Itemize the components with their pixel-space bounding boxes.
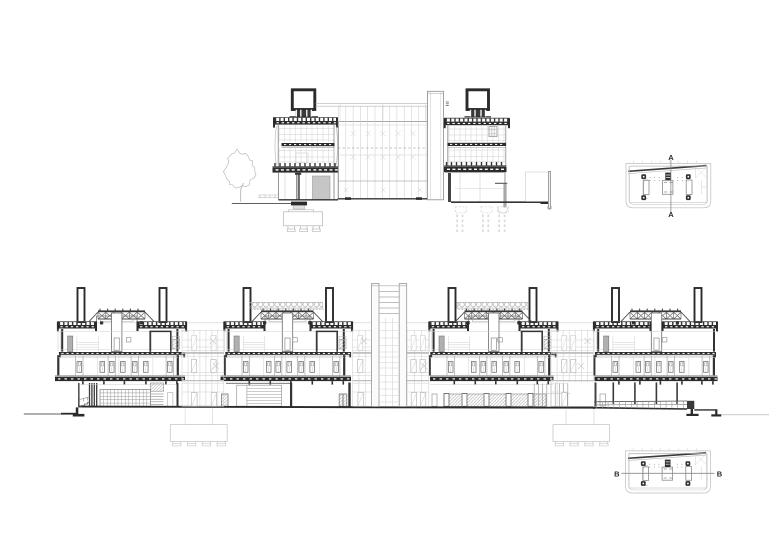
- svg-text:B: B: [717, 469, 723, 478]
- svg-text:A: A: [668, 210, 674, 219]
- svg-text:A: A: [668, 153, 674, 162]
- svg-text:B: B: [614, 469, 620, 478]
